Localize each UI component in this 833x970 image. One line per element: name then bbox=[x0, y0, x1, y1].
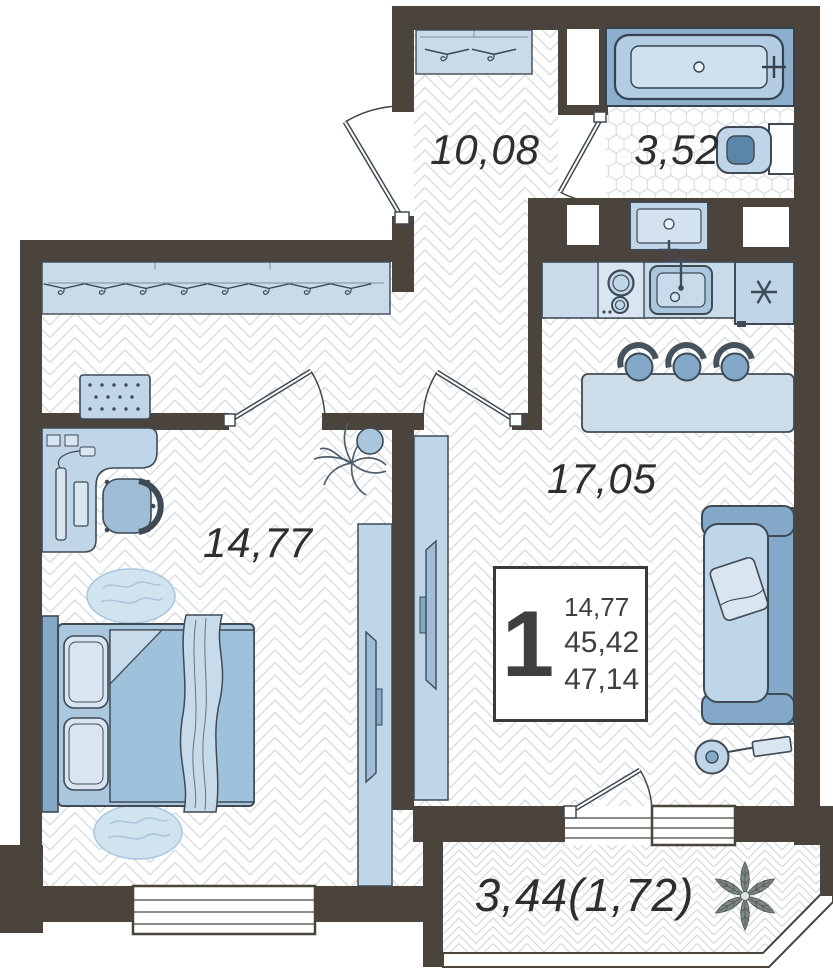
doorway-floor bbox=[229, 413, 322, 430]
tv-icon bbox=[426, 541, 436, 689]
bar-counter bbox=[582, 374, 794, 432]
tv-console-bedroom bbox=[358, 524, 392, 886]
tv-console-living bbox=[414, 436, 448, 800]
bed bbox=[42, 615, 254, 812]
bedroom-window bbox=[133, 886, 315, 934]
headboard bbox=[42, 616, 58, 812]
computer-monitor bbox=[56, 468, 66, 540]
living-room-window bbox=[565, 806, 735, 845]
rug bbox=[87, 569, 175, 623]
room-area-label-bathroom: 3,52 bbox=[607, 126, 747, 174]
room-area-label-balcony: 3,44(1,72) bbox=[462, 868, 707, 922]
summary-box: 1 14,77 45,42 47,14 bbox=[493, 566, 648, 722]
area-value-living: 14,77 bbox=[564, 590, 629, 624]
bathroom-door bbox=[560, 112, 606, 202]
bed-pillow bbox=[64, 718, 108, 790]
fridge bbox=[735, 262, 794, 327]
entry-door bbox=[345, 106, 409, 224]
speaker bbox=[65, 435, 78, 446]
duct-niche bbox=[566, 28, 600, 106]
speaker bbox=[47, 435, 60, 446]
mouse bbox=[80, 447, 95, 456]
tv-mount bbox=[420, 597, 426, 633]
bed-throw bbox=[180, 615, 222, 812]
hallway-wardrobe bbox=[42, 262, 390, 314]
rug bbox=[94, 805, 182, 859]
area-value-without-balcony: 45,42 bbox=[564, 624, 639, 661]
desk-chair bbox=[103, 479, 161, 533]
dresser bbox=[80, 375, 150, 419]
tv-mount bbox=[376, 689, 382, 725]
area-value-total: 47,14 bbox=[564, 661, 639, 698]
apartment-floor-plan: 10,08 3,52 17,05 14,77 3,44(1,72) 1 14,7… bbox=[0, 0, 833, 970]
duct-niche bbox=[742, 206, 790, 248]
stove bbox=[598, 262, 644, 318]
duct-niche bbox=[566, 204, 600, 246]
bed-pillow bbox=[64, 636, 108, 708]
room-area-label-entry-hall: 10,08 bbox=[415, 126, 555, 174]
entry-coat-rack bbox=[416, 30, 532, 74]
room-area-label-bedroom: 14,77 bbox=[188, 519, 328, 567]
sofa bbox=[702, 506, 794, 724]
tv-icon bbox=[366, 632, 376, 782]
doorway-floor bbox=[423, 413, 512, 430]
keyboard bbox=[74, 482, 88, 526]
room-area-label-kitchen-living: 17,05 bbox=[532, 455, 672, 503]
bathtub bbox=[606, 28, 794, 106]
rooms-count: 1 bbox=[502, 602, 554, 687]
